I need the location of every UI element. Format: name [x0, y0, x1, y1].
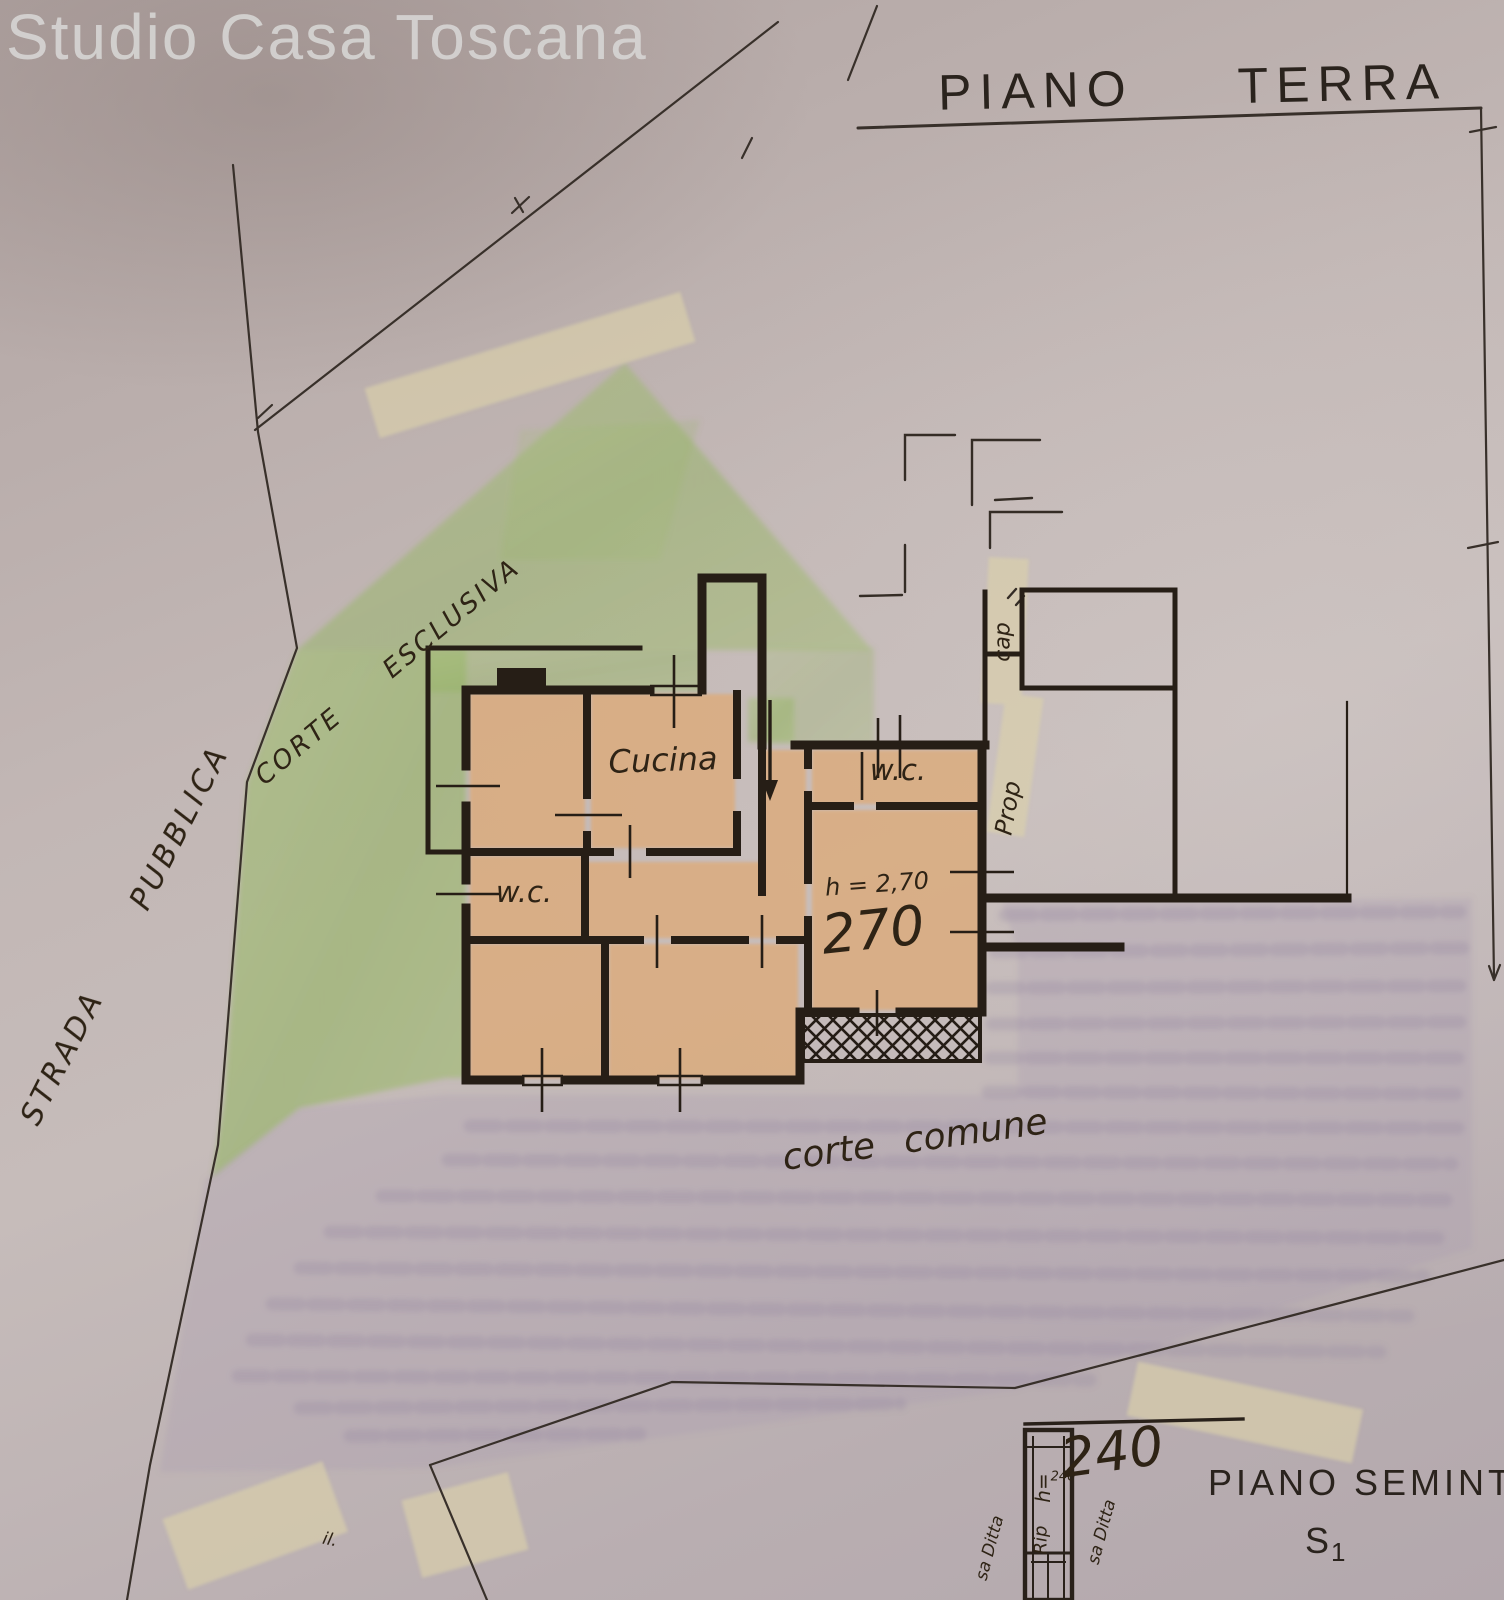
wc-left-label: w.c. — [496, 875, 552, 909]
adjacent-building-outline — [860, 435, 1062, 605]
kitchen-label: Cucina — [608, 739, 718, 781]
floor-title-word2: TERRA — [1237, 52, 1448, 115]
scanned-floor-plan-page: Studio Casa Toscana PIANO TERRA STRADA P… — [0, 0, 1504, 1600]
floor-title: PIANO TERRA — [937, 52, 1447, 122]
floor-title-word1: PIANO — [937, 59, 1134, 121]
basement-floor-code-main: S — [1305, 1520, 1331, 1561]
basement-title: PIANO SEMINTE — [1208, 1462, 1504, 1504]
basement-storage-label: Rip — [1031, 1526, 1052, 1555]
basement-floor-code: S1 — [1305, 1520, 1347, 1568]
basement-height-small: 240 — [1051, 1470, 1076, 1485]
agency-watermark: Studio Casa Toscana — [6, 0, 648, 74]
site-plan-drawing — [0, 0, 1504, 1600]
wc-right-label: w.c. — [870, 753, 926, 787]
room-height-value: 270 — [818, 893, 927, 966]
basement-floor-code-sub: 1 — [1331, 1537, 1347, 1567]
cap-note-label: cap — [991, 622, 1016, 662]
